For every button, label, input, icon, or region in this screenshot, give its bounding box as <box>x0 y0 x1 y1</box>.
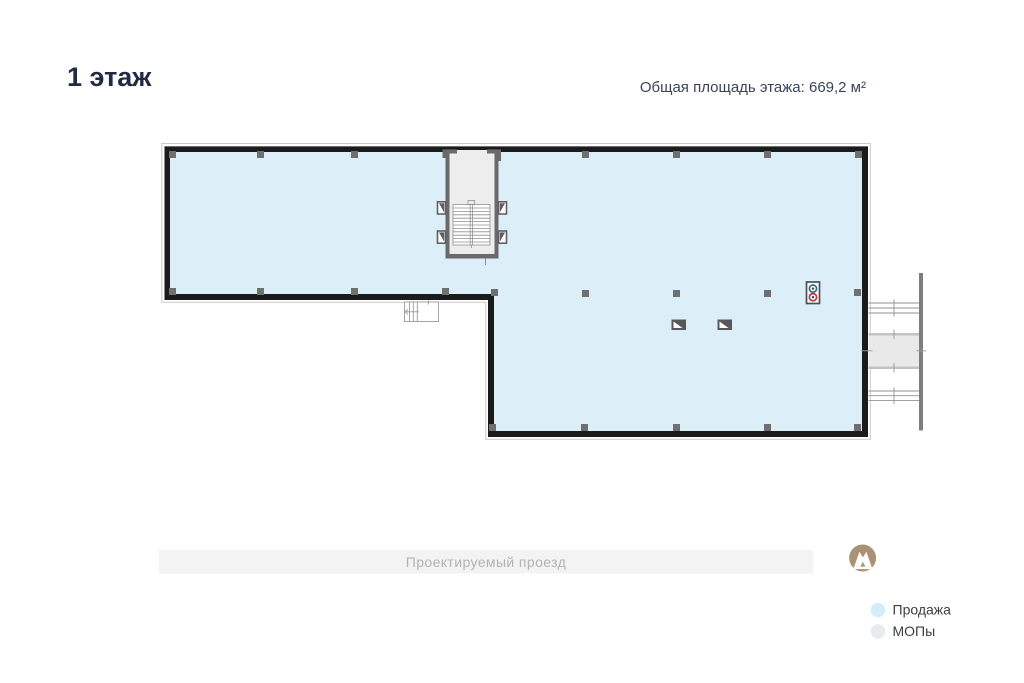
svg-text:МОПы: МОПы <box>893 623 936 639</box>
svg-text:Общая площадь этажа: 669,2 м²: Общая площадь этажа: 669,2 м² <box>640 79 866 96</box>
svg-text:1 этаж: 1 этаж <box>67 62 152 92</box>
svg-text:Продажа: Продажа <box>893 602 952 618</box>
svg-text:Проектируемый проезд: Проектируемый проезд <box>406 554 567 570</box>
